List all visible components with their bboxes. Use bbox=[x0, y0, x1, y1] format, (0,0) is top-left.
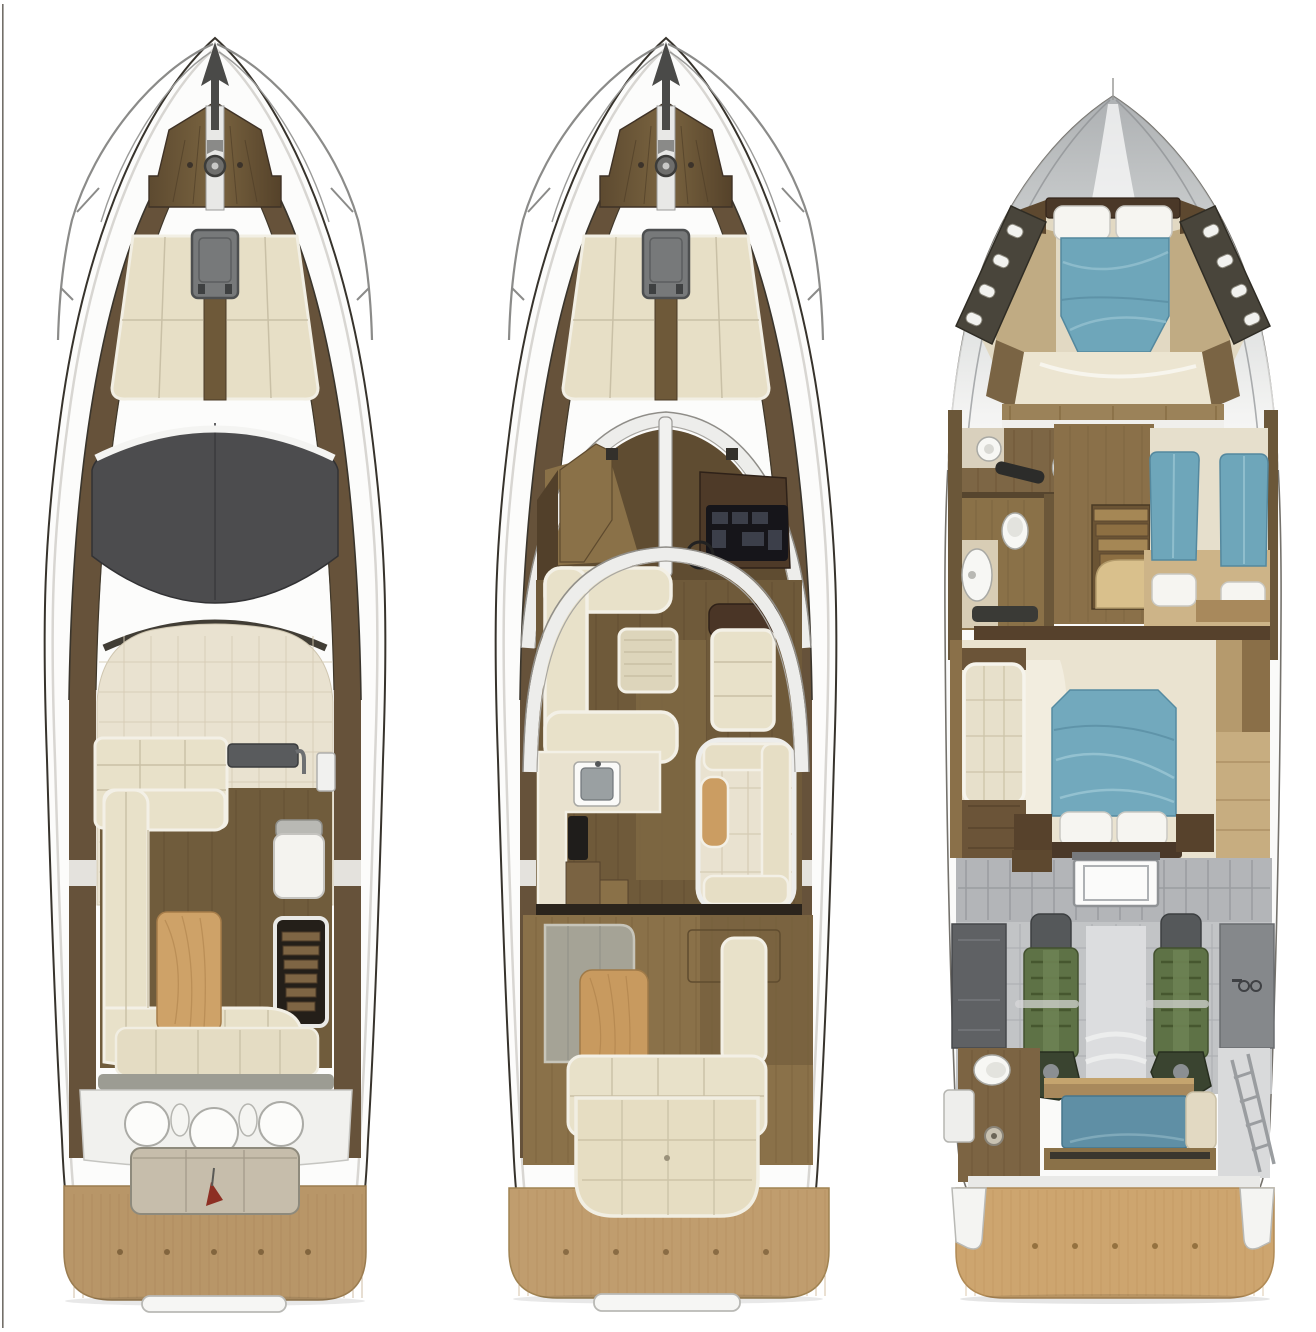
svg-text:▬: ▬ bbox=[1232, 974, 1242, 985]
